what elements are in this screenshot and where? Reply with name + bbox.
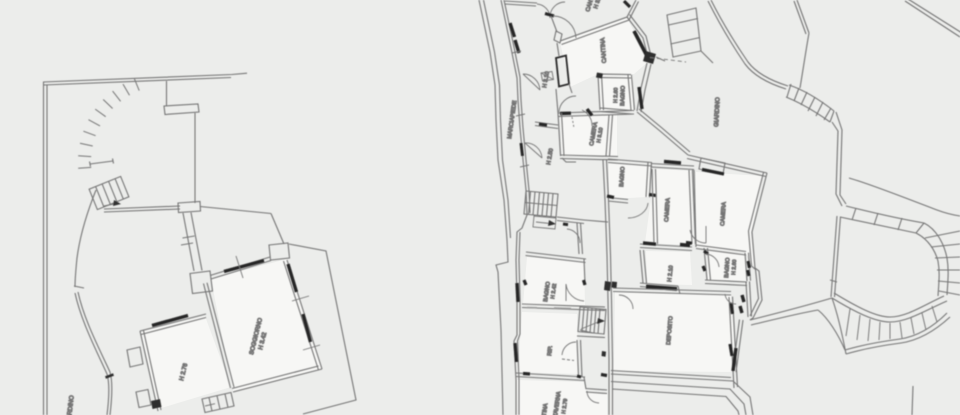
svg-text:H 2.60: H 2.60 — [731, 259, 738, 275]
svg-text:H 2.60: H 2.60 — [613, 87, 620, 103]
svg-text:BAGNO: BAGNO — [620, 85, 627, 106]
svg-text:RIP.: RIP. — [547, 345, 554, 356]
